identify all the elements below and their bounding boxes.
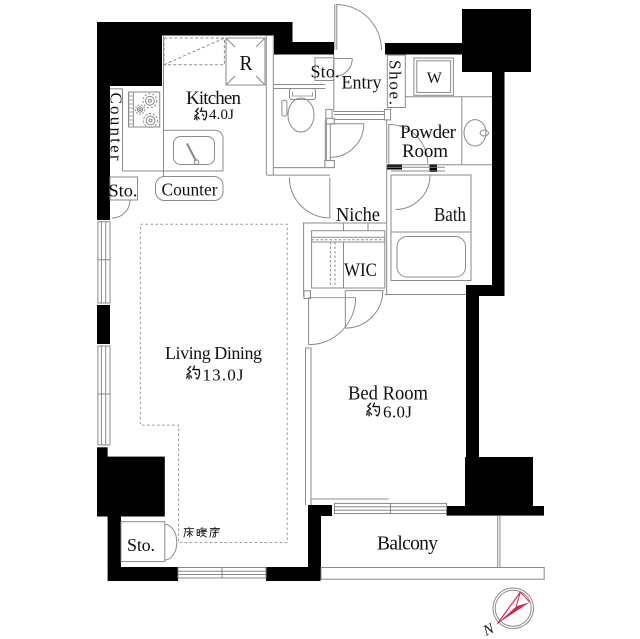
svg-text:Powder: Powder — [400, 122, 457, 143]
svg-text:Balcony: Balcony — [377, 534, 438, 555]
svg-text:Bed Room: Bed Room — [348, 383, 428, 405]
svg-text:Kitchen: Kitchen — [186, 88, 242, 109]
svg-text:13.0J: 13.0J — [203, 366, 244, 385]
svg-text:Sto.: Sto. — [127, 535, 155, 555]
svg-text:WIC: WIC — [344, 260, 377, 281]
svg-text:Counter: Counter — [162, 180, 218, 200]
svg-text:Shoe.: Shoe. — [386, 60, 405, 105]
svg-text:Sto.: Sto. — [311, 62, 340, 82]
svg-text:6.0J: 6.0J — [383, 403, 412, 422]
svg-text:Niche: Niche — [336, 204, 380, 226]
svg-text:4.0J: 4.0J — [209, 107, 234, 123]
svg-text:Room: Room — [402, 141, 448, 162]
svg-text:Counter: Counter — [107, 93, 126, 161]
svg-text:R: R — [240, 51, 253, 75]
svg-text:W: W — [427, 70, 443, 87]
svg-text:Sto.: Sto. — [109, 181, 138, 201]
svg-text:Living Dining: Living Dining — [165, 343, 262, 363]
svg-text:Bath: Bath — [434, 204, 466, 226]
svg-text:Entry: Entry — [342, 73, 382, 94]
